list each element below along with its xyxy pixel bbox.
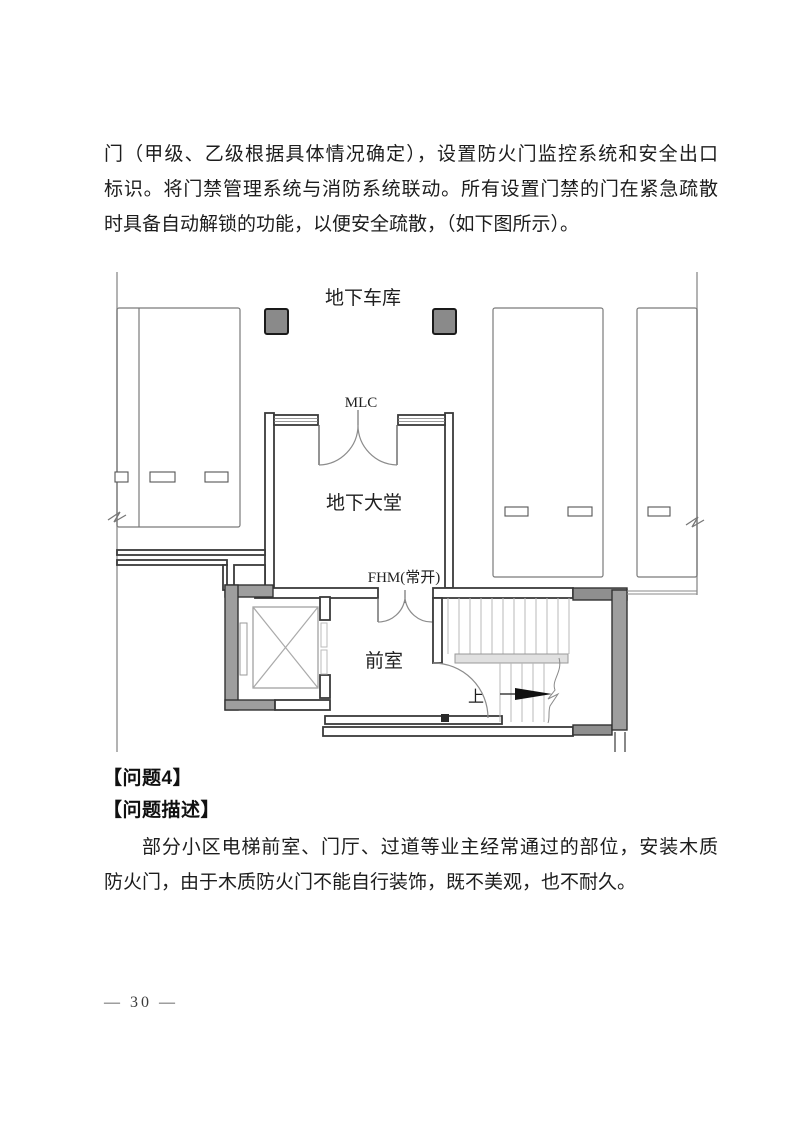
paragraph-bottom: 部分小区电梯前室、门厅、过道等业主经常通过的部位，安装木质 防火门，由于木质防火… — [104, 830, 718, 900]
counterweight — [240, 623, 247, 675]
paragraph-top-line2: 标识。将门禁管理系统与消防系统联动。所有设置门禁的门在紧急疏散 — [104, 172, 718, 207]
corridor-walls — [117, 550, 265, 590]
front-room-label: 前室 — [365, 650, 403, 672]
parking-bay-left — [115, 308, 240, 527]
stair-treads-upper — [448, 598, 569, 654]
paragraph-top-line3: 时具备自动解锁的功能，以便安全疏散，（如下图所示）。 — [104, 207, 718, 242]
lobby-label: 地下大堂 — [326, 492, 402, 514]
up-label: 上 — [468, 688, 484, 706]
fhm-label: FHM(常开) — [368, 569, 441, 586]
paragraph-top-line1: 门（甲级、乙级根据具体情况确定），设置防火门监控系统和安全出口 — [104, 137, 718, 172]
heading-problem-description: 【问题描述】 — [103, 798, 220, 824]
paragraph-bottom-line1: 部分小区电梯前室、门厅、过道等业主经常通过的部位，安装木质 — [104, 830, 718, 865]
mlc-door: MLC — [319, 395, 397, 465]
floorplan-diagram: 地下车库 — [100, 262, 705, 762]
document-page: 门（甲级、乙级根据具体情况确定），设置防火门监控系统和安全出口 标识。将门禁管理… — [0, 0, 793, 1122]
column-right — [433, 309, 456, 334]
garage-label: 地下车库 — [325, 287, 401, 309]
stair-landing — [455, 654, 568, 663]
page-number: — 30 — — [104, 994, 178, 1012]
paragraph-top: 门（甲级、乙级根据具体情况确定），设置防火门监控系统和安全出口 标识。将门禁管理… — [104, 137, 718, 242]
stair-break-line — [548, 658, 560, 723]
mlc-label: MLC — [345, 395, 378, 411]
paragraph-bottom-line2: 防火门，由于木质防火门不能自行装饰，既不美观，也不耐久。 — [104, 865, 718, 900]
door-stop — [441, 714, 449, 722]
elevator-shaft — [225, 585, 330, 710]
column-left — [265, 309, 288, 334]
heading-problem4: 【问题4】 — [103, 766, 192, 792]
elevator-car-icon — [253, 607, 318, 688]
break-symbol-right — [686, 517, 704, 527]
parking-bay-right — [493, 308, 697, 577]
